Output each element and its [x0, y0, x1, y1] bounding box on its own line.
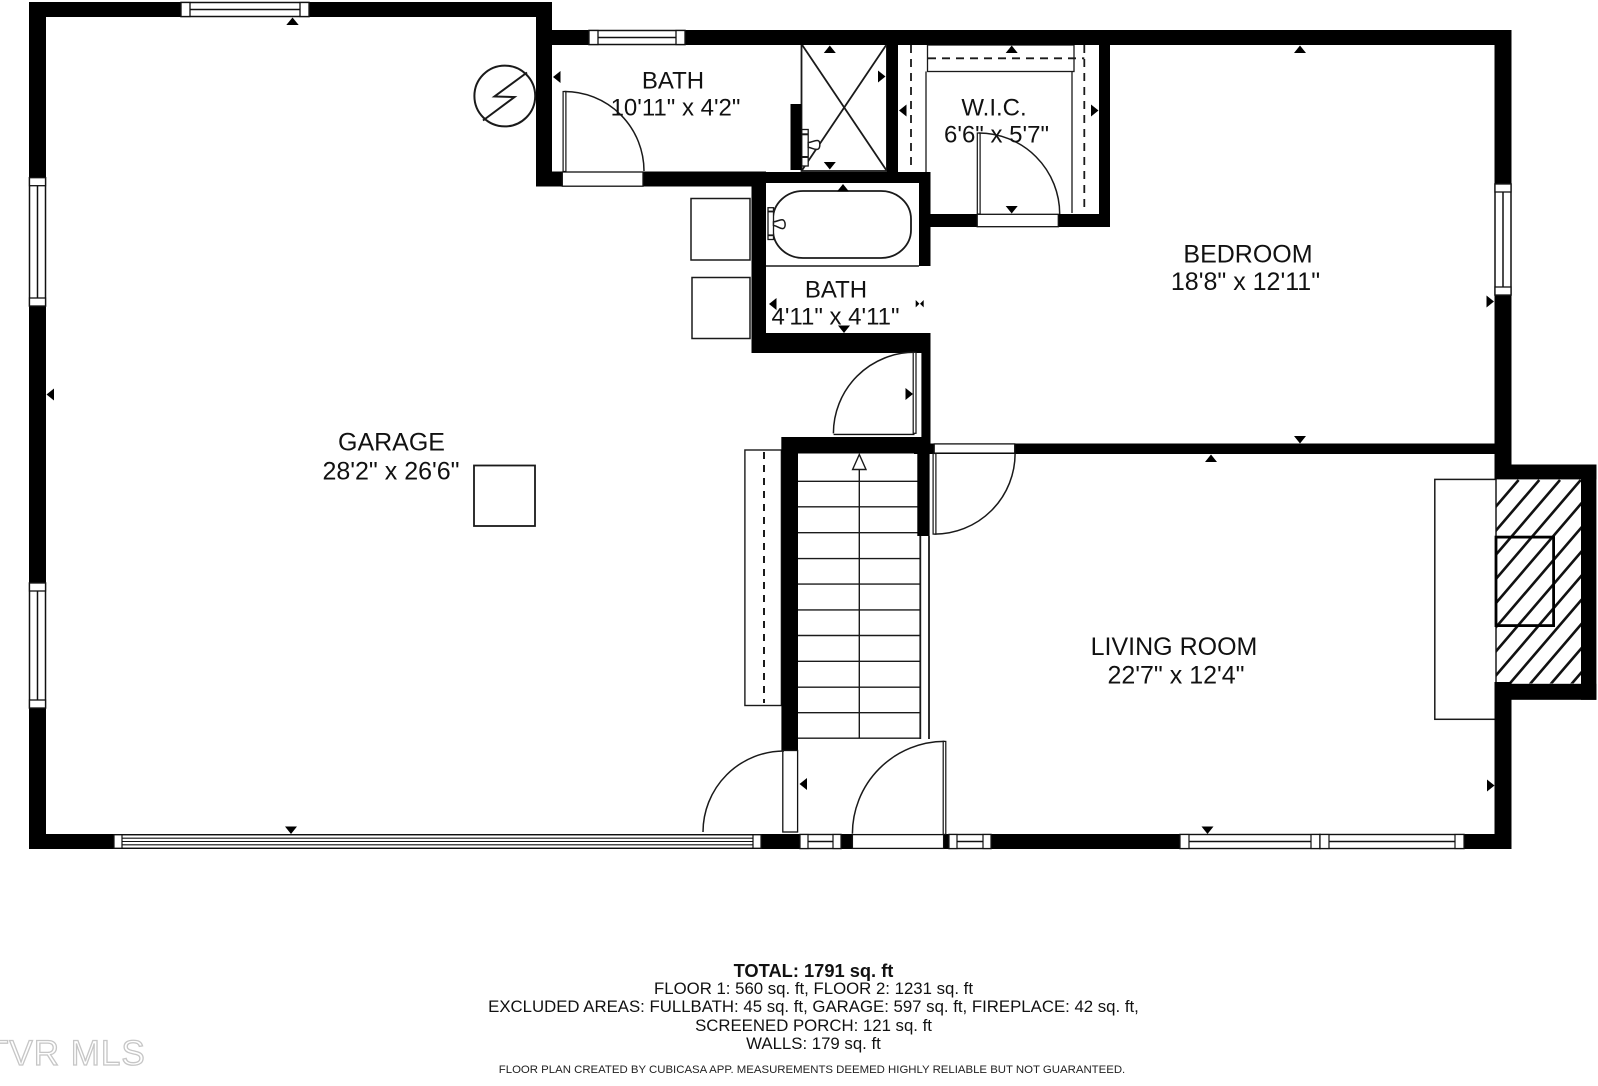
svg-text:BATH: BATH: [805, 277, 867, 304]
svg-text:10'11" x 4'2": 10'11" x 4'2": [611, 95, 741, 122]
svg-text:LIVING ROOM: LIVING ROOM: [1091, 633, 1258, 661]
svg-text:18'8" x 12'11": 18'8" x 12'11": [1171, 268, 1320, 296]
svg-text:W.I.C.: W.I.C.: [961, 95, 1026, 122]
svg-text:GARAGE: GARAGE: [338, 429, 445, 457]
svg-text:BEDROOM: BEDROOM: [1183, 241, 1312, 269]
svg-text:28'2" x 26'6": 28'2" x 26'6": [322, 458, 459, 486]
svg-text:BATH: BATH: [642, 68, 704, 95]
svg-text:4'11" x 4'11": 4'11" x 4'11": [771, 304, 899, 331]
svg-text:22'7" x 12'4": 22'7" x 12'4": [1107, 662, 1244, 690]
svg-text:6'6" x 5'7": 6'6" x 5'7": [944, 122, 1049, 149]
